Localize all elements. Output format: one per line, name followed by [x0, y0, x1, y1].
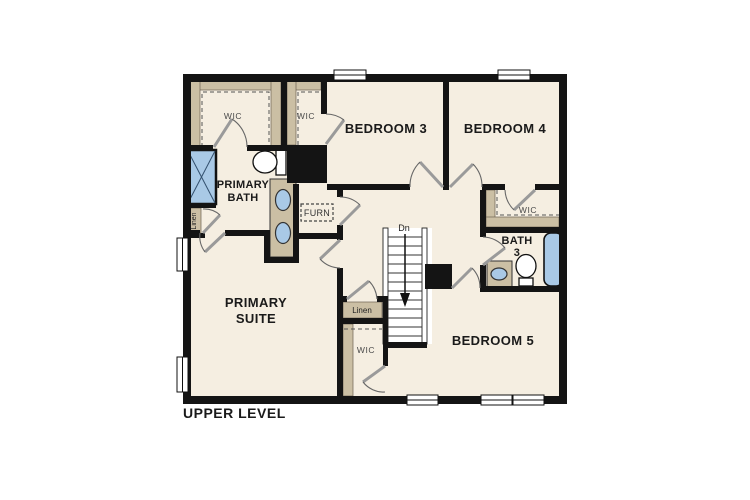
chase-block [287, 145, 327, 183]
primary-suite-label: SUITE [236, 311, 276, 326]
bedroom4-label: BEDROOM 4 [464, 121, 547, 136]
wic-bedroom3-label: WIC [297, 111, 315, 121]
bedroom5-label: BEDROOM 5 [452, 333, 534, 348]
level-title: UPPER LEVEL [183, 405, 286, 421]
floor-plan-page: BEDROOM 3 BEDROOM 4 BEDROOM 5 PRIMARY SU… [0, 0, 750, 500]
wic-bedroom4-label: WIC [519, 205, 537, 215]
sink-icon [276, 223, 291, 244]
wic-bedroom5-label: WIC [357, 345, 375, 355]
chase-block [425, 264, 452, 289]
bedroom3-label: BEDROOM 3 [345, 121, 427, 136]
window-icon [513, 395, 544, 405]
primary-bath-vanity [270, 179, 296, 257]
window-icon [407, 395, 438, 405]
window-icon [177, 238, 188, 271]
primary-bath-label: BATH [228, 192, 259, 204]
primary-bath-toilet [253, 150, 286, 175]
staircase [383, 228, 432, 344]
linen-hall-label: Linen [352, 306, 372, 315]
bath3-toilet [516, 255, 536, 287]
window-icon [481, 395, 512, 405]
sink-icon [491, 268, 507, 280]
window-icon [177, 357, 188, 392]
primary-suite-label: PRIMARY [225, 295, 287, 310]
bath3-vanity [487, 261, 512, 288]
window-icon [498, 70, 530, 80]
sink-icon [276, 190, 291, 211]
furnace-label: FURN [304, 208, 330, 218]
window-icon [334, 70, 366, 80]
stairs-dn-label: Dn [398, 223, 410, 233]
bath3-label: BATH [502, 235, 533, 247]
primary-bath-label: PRIMARY [217, 179, 270, 191]
linen-bath-label: Linen [191, 212, 198, 229]
shower [187, 150, 216, 204]
wic-primary-label: WIC [224, 111, 242, 121]
floor-plan-drawing: BEDROOM 3 BEDROOM 4 BEDROOM 5 PRIMARY SU… [0, 0, 750, 500]
bath3-label: 3 [514, 247, 520, 259]
